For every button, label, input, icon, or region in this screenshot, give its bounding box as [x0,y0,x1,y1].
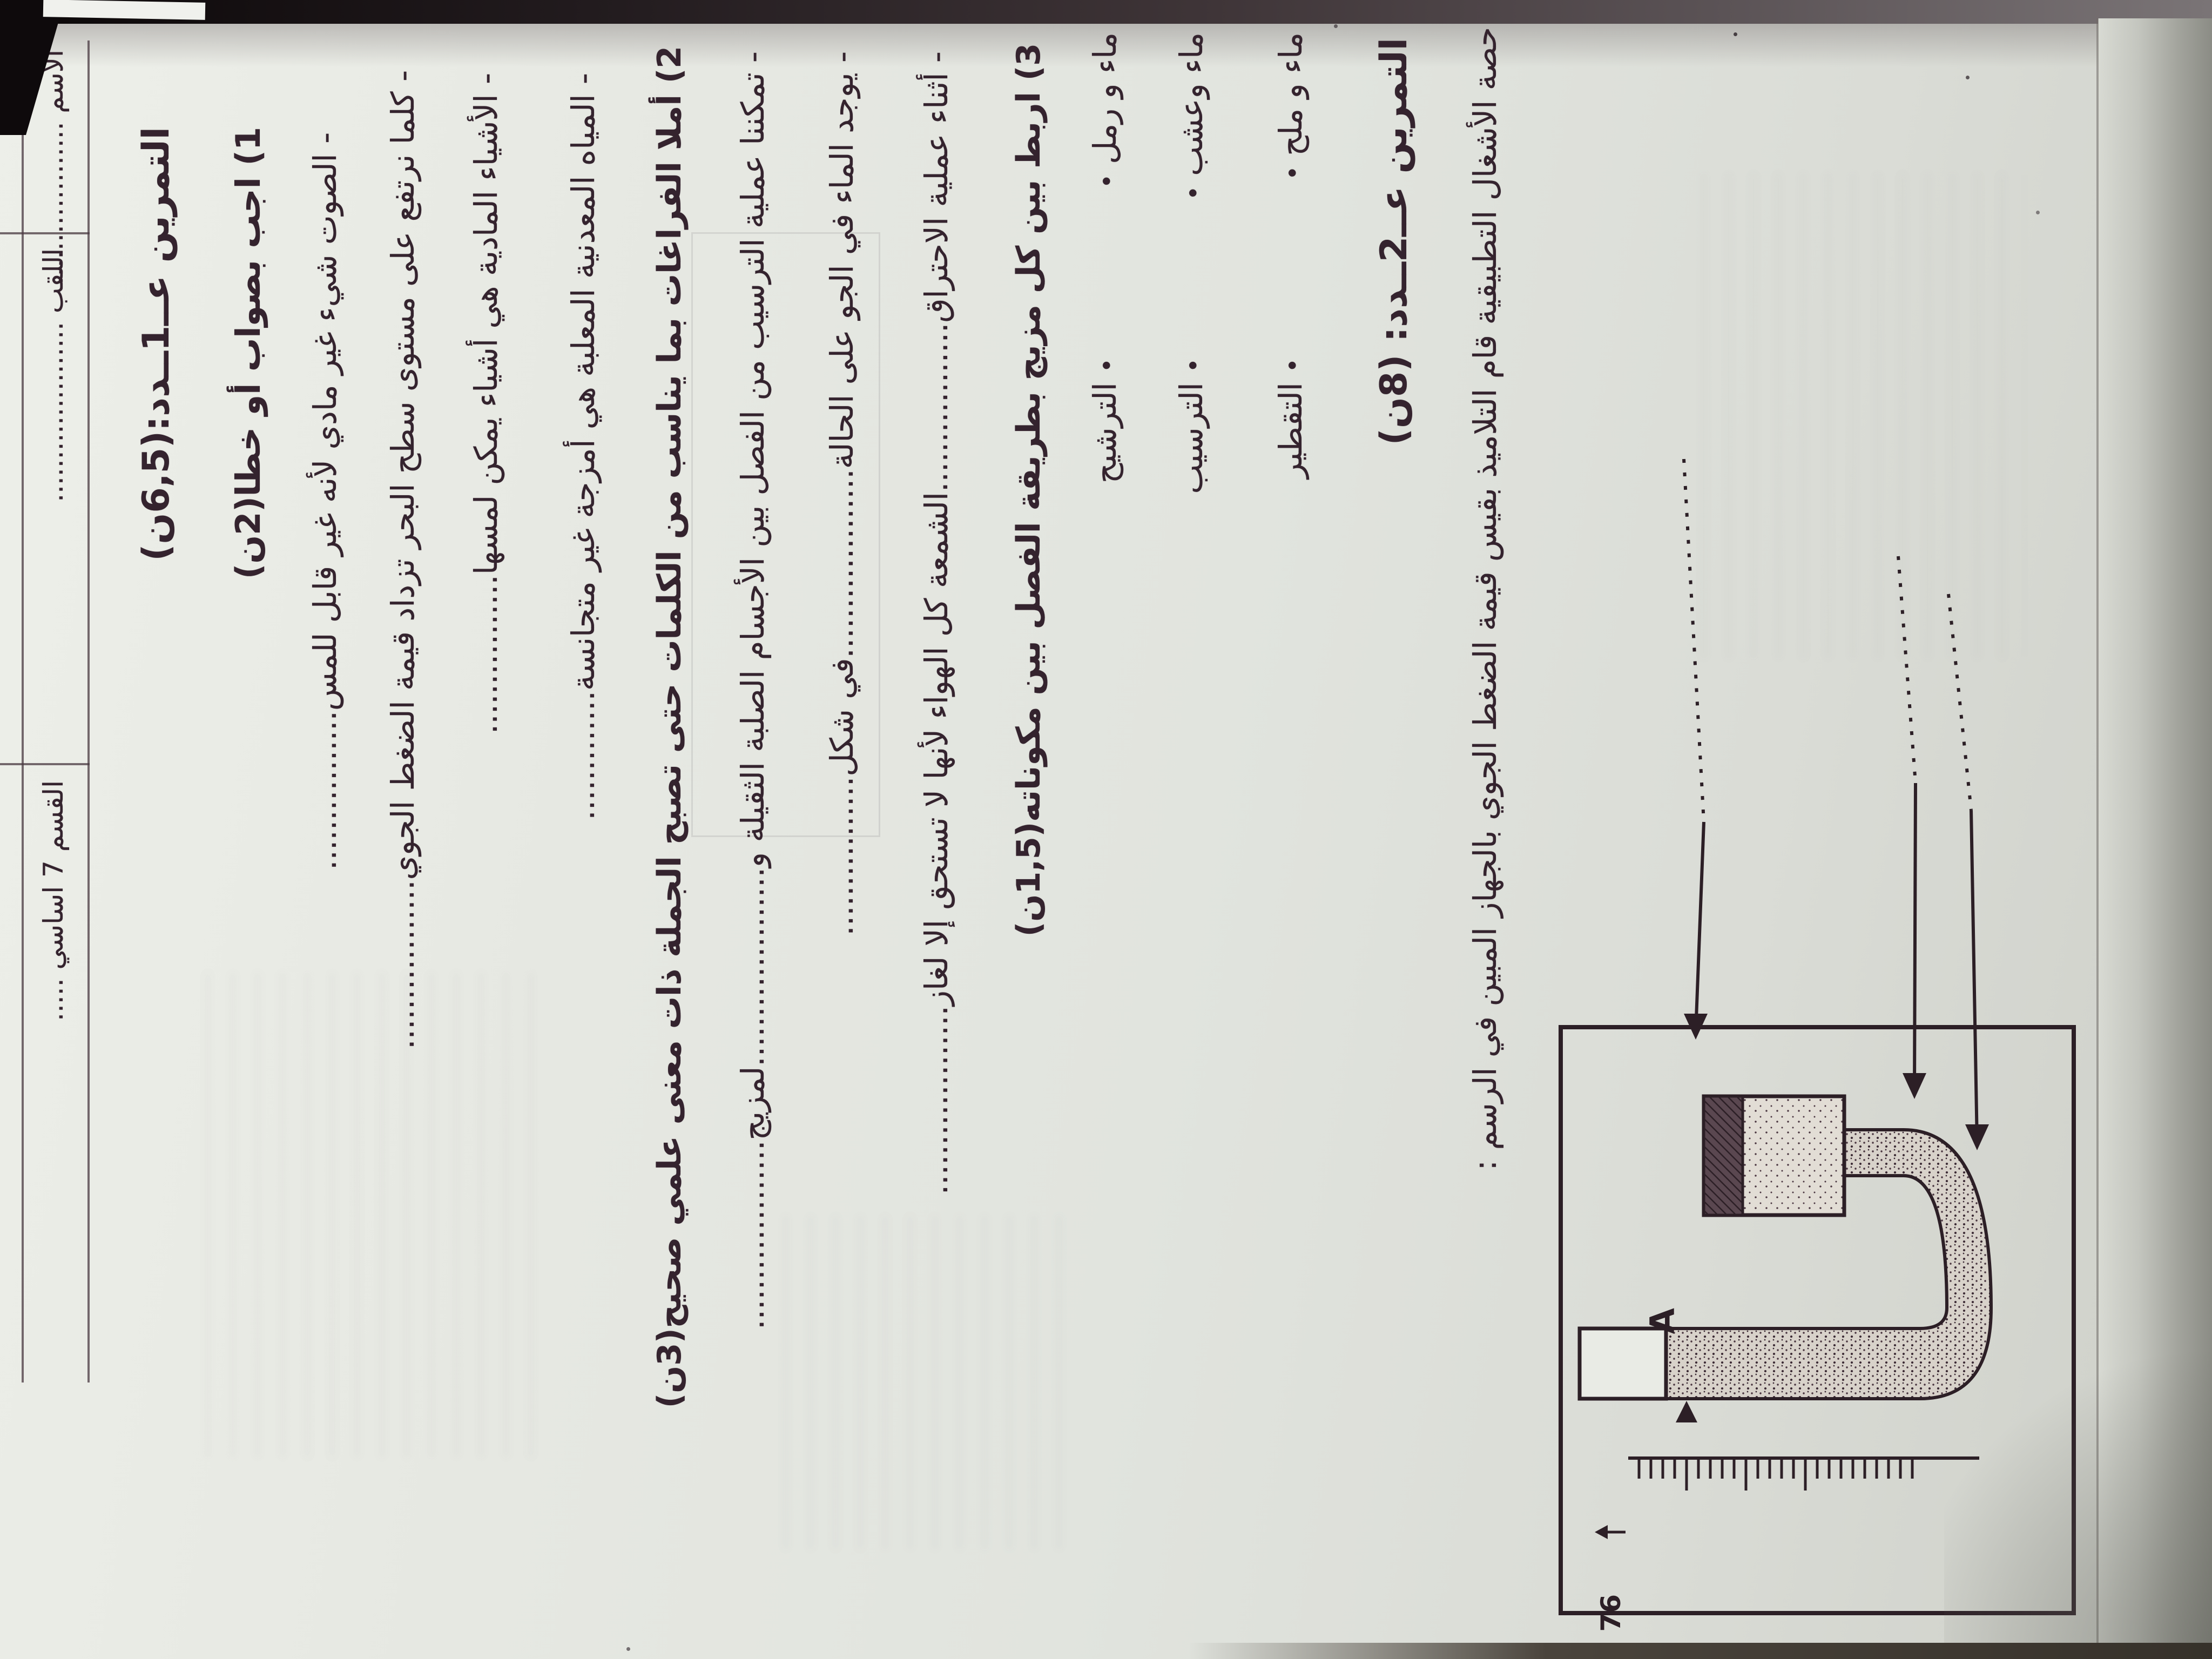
header-table-top-border [22,49,24,1382]
scale-value-arrowhead [1595,1525,1608,1539]
page-content-rotated: الاسم ................... اللقب ........… [0,0,2212,1659]
q1-item: - الأشياء المادية هي أشياء يمكن لمسها...… [468,73,504,734]
callout-arrow-line [1696,822,1704,1033]
header-cell-surname: اللقب ..................... [38,248,69,502]
match-bullet: • [1179,348,1208,382]
photo-bottom-edge [1188,1643,2212,1659]
callout-arrowhead [1903,1073,1926,1099]
match-bullet: • [1179,176,1208,210]
match-mix: ماء و ملح• [1272,32,1309,190]
figure-callout-arrows [1653,390,2031,1200]
match-mix-label: ماء و ملح [1272,32,1309,156]
match-mix: ماء و رمل• [1087,32,1123,198]
header-cell-class: القسم 7 اساسي ..... [38,780,69,1021]
exam-photo: الاسم ................... اللقب ........… [0,0,2212,1659]
match-mix-label: ماء و رمل [1087,32,1123,164]
dust-specks [1734,32,1737,36]
callout-blank-line [1684,459,1704,822]
match-method: •التقطير [1272,348,1309,478]
callout-arrowhead [1965,1124,1989,1150]
exercise2-title: التمرين عــ2ــدد: (8ن) [1373,38,1415,445]
class-blank-dots: ..... [38,978,69,1021]
header-table-bottom-border [87,41,90,1382]
q2-item: - أثناء عملية الاحتراق.................ا… [918,51,955,1195]
q2-item: - يوجد الماء في الجو على الحالة.........… [824,51,860,936]
match-bullet: • [1092,164,1122,198]
match-mix: ماء وعشب• [1173,32,1210,210]
scale-ticks [1639,1458,1912,1491]
exercise1-q3-heading: 3) اربط بين كل مزيج بطريقة الفصل بين مكو… [1010,43,1048,936]
corner-vignette [1944,1323,2212,1659]
match-method-label: التقطير [1272,382,1309,478]
class-label: القسم 7 اساسي [38,780,69,970]
scale-value-label: 76 [1595,1594,1627,1632]
exercise1-q1-heading: 1) اجب بصواب أو خطا(2ن) [228,127,268,579]
match-bullet: • [1278,348,1307,382]
photo-top-edge [0,0,2212,24]
q1-item: - كلما نرتفع على مستوى سطح البحر تزداد ق… [385,70,421,1049]
callout-blank-line [1898,556,1916,783]
point-a-label: A [1643,1308,1682,1334]
match-method-label: الترسيب [1173,382,1210,494]
surname-label: اللقب [38,248,69,313]
q1-item: - الصوت شيء غير مادي لأنه غير قابل للمس.… [307,132,343,870]
callout-arrow-line [1971,810,1977,1143]
callout-arrow-line [1914,783,1916,1092]
match-bullet: • [1278,156,1307,190]
surname-blank-dots: ..................... [38,322,69,502]
paper-edge-sliver [43,0,206,20]
match-method: •الترشيح [1087,348,1123,483]
exercise1-title: التمرين عــ1ــدد:(6,5ن) [135,127,178,561]
exercise2-intro: حصة الأشغال التطبيقية قام التلاميذ بقيس … [1467,27,1503,1170]
mercury-level-pointer [1676,1401,1697,1422]
match-method-label: الترشيح [1087,382,1123,483]
q1-item: - المياه المعدنية المعلبة هي أمزجة غير م… [565,73,602,820]
callout-blank-line [1948,594,1971,810]
match-bullet: • [1092,348,1122,382]
header-table-divider [0,763,90,765]
vacuum-chamber [1580,1328,1666,1399]
match-mix-label: ماء وعشب [1173,32,1210,176]
q2-item: - تمكننا عملية الترسيب من الفصل بين الأج… [734,51,771,1330]
exercise1-q2-heading: 2) أملا الفراغات بما يناسب من الكلمات حت… [651,46,689,1408]
callout-arrowhead [1684,1014,1708,1040]
match-method: •الترسيب [1173,348,1210,494]
